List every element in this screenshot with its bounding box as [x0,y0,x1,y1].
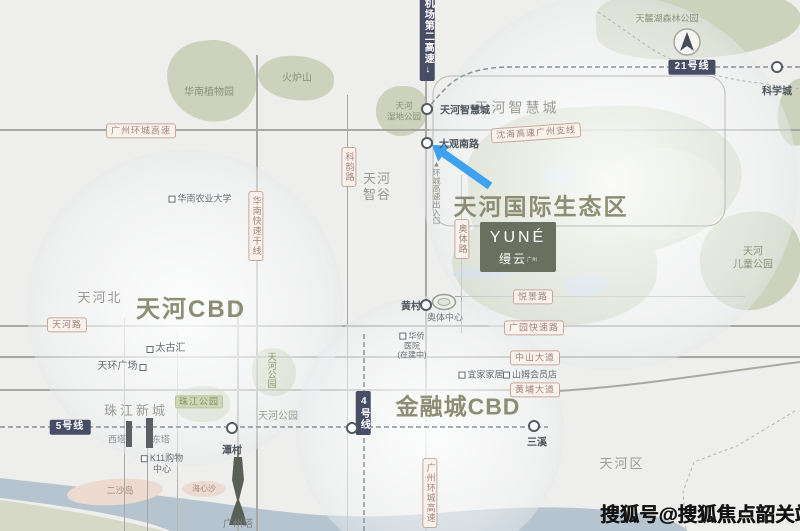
road-badge-huangpu-avenue: 黄埔大道 [510,382,560,397]
poi-tianhuan-plaza-icon [140,364,147,371]
poi-tianhuan-plaza-text: 天环广场 [98,361,138,373]
project-name: 缦云广州 [480,250,556,267]
poi-huaqiao-hospital-text: 华侨 [408,332,424,342]
road-badge-south-china-expressway: 华南快速干线 [248,191,263,261]
poi-k11-text: 中心 [153,464,171,475]
park-label-wetland-park: 天河湿地公园 [387,100,421,121]
poi-k11-text: K11购物 [150,453,183,464]
poi-scau-text: 华南农业大学 [177,194,231,205]
station-huangcun [420,299,432,311]
project-logo-box: YUNÉ 缦云广州 [480,222,556,272]
poi-taikoo-hui-row: 太古汇 [147,343,186,355]
district-tianhe-north: 天河北 [77,290,122,306]
label-east-tower: 东塔 [152,434,170,445]
park-label-tianhe-park: 天河公园 [258,411,298,424]
park-label-wetland-park-line: 天河 [387,100,421,111]
district-tianhe-zhigu-line: 智谷 [363,187,391,203]
poi-scau: 华南农业大学 [168,194,231,205]
district-tianhe-cbd: 天河CBD [136,295,246,325]
label-canton-tower: 广州塔 [223,519,253,531]
poi-ikea-icon [458,371,465,378]
park-label-botanical-garden: 华南植物园 [184,87,234,100]
poi-k11-row: K11购物 [141,453,183,464]
station-science-city-label: 科学城 [762,83,792,98]
road-badge-aoti-road: 奥体路 [454,219,469,259]
poi-ikea: 宜家家居 [458,370,503,381]
poi-tianhuan-plaza-row: 天环广场 [98,361,147,373]
district-tianhe-zhigu-line: 天河 [363,171,391,187]
road-badge-airport-second-expressway: 机场第二高速↓ [420,0,435,81]
road-badge-zhongshan-avenue: 中山大道 [510,350,560,365]
poi-scau-row: 华南农业大学 [168,194,231,205]
poi-huaqiao-hospital-row: 医院 [397,341,426,351]
poi-huaqiao-hospital-row: (在建中) [397,351,426,361]
features-layer: 天河CBD金融城CBD天河国际生态区天河智慧城天河北珠江新城天河智谷天河区天河公… [0,0,800,531]
road-badge-shenhai-expressway: 沈海高速广州支线 [491,122,582,143]
poi-sams-club-text: 山姆会员店 [512,370,557,381]
label-haixinsha: 海心沙 [192,484,216,494]
station-tianhe-smart-city-label: 天河智慧城 [440,102,490,117]
park-badge-zhujiang-park: 珠江公园 [175,395,223,408]
park-label-wetland-park-line: 湿地公园 [387,111,421,122]
label-aoti-center: 奥体中心 [427,312,463,323]
park-label-children-park-line: 儿童公园 [733,259,773,272]
poi-ikea-text: 宜家家居 [467,370,503,381]
district-eco-area: 天河国际生态区 [454,193,629,222]
poi-huaqiao-hospital-text: 医院 [404,341,420,351]
west-tower-icon [126,421,132,447]
district-tianhe-zhigu: 天河智谷 [363,171,391,204]
station-daguan-south-road-label: 大观南路 [439,136,479,151]
project-name-text: 缦云 [499,252,527,266]
district-zhujiang-new-town: 珠江新城 [104,403,168,419]
metro-badge-line-21: 21号线 [668,60,715,75]
station-tianhe-smart-city [421,103,433,115]
poi-tianhuan-plaza: 天环广场 [98,361,147,373]
poi-taikoo-hui-icon [147,346,154,353]
park-label-tianhe-park-vertical: 天河公园 [265,352,276,388]
poi-k11-icon [141,455,148,462]
road-badge-tianhe-road: 天河路 [47,317,87,332]
park-label-tianluhu: 天麓湖森林公园 [635,13,698,24]
station-interchange [346,422,358,434]
station-sanxi-label: 三溪 [527,434,547,449]
station-science-city [771,61,783,73]
poi-k11-row: 中心 [141,464,183,475]
poi-huaqiao-hospital: 华侨医院(在建中) [397,332,426,361]
park-label-children-park: 天河儿童公园 [733,247,773,272]
poi-sams-club-icon [503,371,510,378]
poi-taikoo-hui-text: 太古汇 [156,343,186,355]
watermark: 搜狐号@搜狐焦点韶关站 [600,498,800,527]
station-tancun-label: 潭村 [222,442,242,457]
poi-huaqiao-hospital-icon [399,333,406,340]
station-sanxi [528,420,540,432]
road-badge-ring-expressway-south: 广州环城高速 [422,458,437,528]
label-ersha-island: 二沙岛 [106,485,133,496]
poi-k11: K11购物中心 [141,453,183,475]
poi-huaqiao-hospital-row: 华侨 [397,332,426,342]
park-label-children-park-line: 天河 [733,247,773,260]
road-badge-yuejing-road: 悦景路 [513,289,553,304]
project-city-text: 广州 [527,257,537,263]
poi-ikea-row: 宜家家居 [458,370,503,381]
location-map: 天河CBD金融城CBD天河国际生态区天河智慧城天河北珠江新城天河智谷天河区天河公… [0,0,800,531]
poi-scau-icon [168,195,175,202]
poi-sams-club: 山姆会员店 [503,370,557,381]
project-logo: YUNÉ [480,229,556,247]
poi-huaqiao-hospital-text: (在建中) [397,351,426,361]
label-west-tower: 西塔 [108,434,126,445]
station-daguan-south-road [421,137,433,149]
poi-taikoo-hui: 太古汇 [147,343,186,355]
station-tancun [226,422,238,434]
metro-badge-line-5: 5号线 [50,420,91,435]
district-tianhe-qu: 天河区 [599,456,644,472]
road-label-ring-expressway-entrance: ▲环城高速出入口 [431,160,441,225]
road-badge-guangyuan-expressway: 广园快速路 [504,320,564,335]
district-financial-city-cbd: 金融城CBD [396,393,521,422]
station-huangcun-label: 黄村 [401,298,421,313]
road-badge-guangzhou-ring-expressway: 广州环城高速 [106,123,176,138]
park-label-huolushan: 火炉山 [282,73,312,86]
road-badge-keyun-road: 科韵路 [341,147,356,187]
poi-sams-club-row: 山姆会员店 [503,370,557,381]
